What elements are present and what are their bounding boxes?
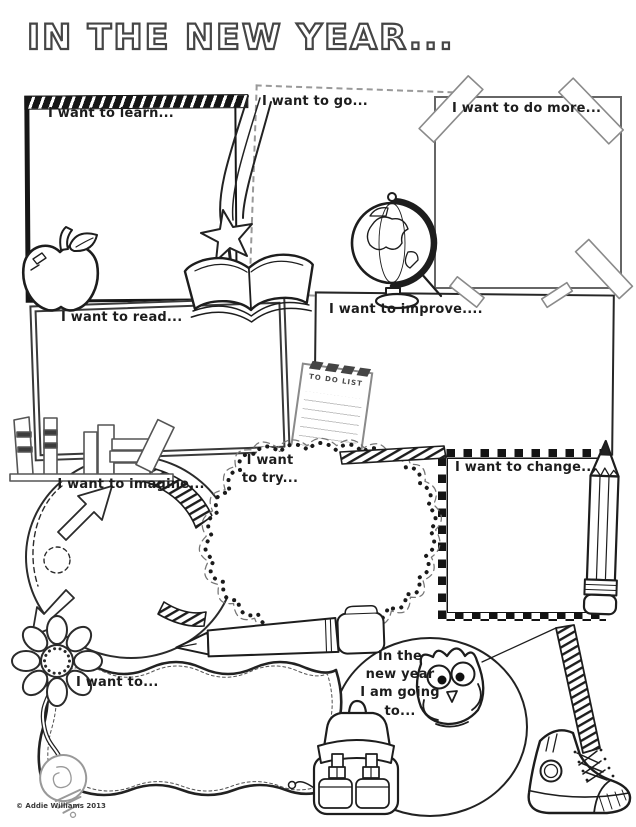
binder-clip-icon (341, 365, 356, 374)
improve-prompt: I want to improve.... (329, 302, 483, 317)
learn-box (24, 94, 237, 302)
binder-clip-icon (325, 363, 340, 372)
change-box-inner (447, 458, 598, 613)
todo-note-lines (297, 391, 363, 459)
change-prompt: I want to change... (455, 460, 597, 475)
try-prompt: I want to try... (228, 452, 312, 488)
go-box (248, 84, 463, 301)
imagine-prompt: I want to imagine... (25, 477, 237, 492)
read-prompt: I want to read... (61, 310, 182, 325)
want-prompt: I want to... (76, 675, 159, 690)
binder-clip-icon (309, 361, 324, 370)
lightbulb-icon (36, 751, 94, 823)
page-title: IN THE NEW YEAR... (27, 18, 455, 58)
new-year-prompt: In the new year I am going to... (348, 648, 452, 721)
do-more-prompt: I want to do more... (452, 101, 601, 116)
learn-prompt: I want to learn... (48, 106, 174, 121)
go-prompt: I want to go... (262, 94, 368, 109)
copyright-text: © Addie Williams 2013 (16, 802, 106, 810)
worksheet-page: IN THE NEW YEAR... TO DO LIST (0, 0, 636, 827)
binder-clip-icon (356, 368, 371, 377)
do-more-box (434, 96, 622, 289)
sneaker-icon (529, 730, 630, 813)
